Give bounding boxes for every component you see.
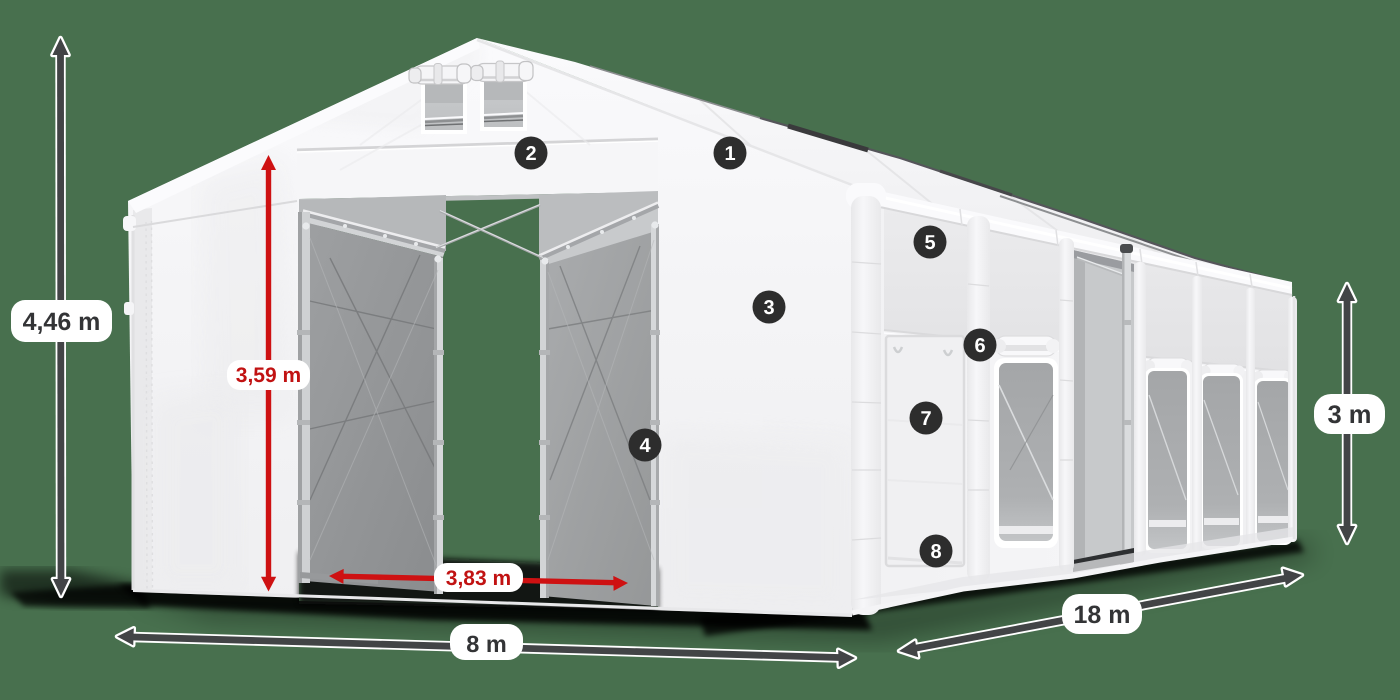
svg-text:5: 5 bbox=[924, 232, 935, 254]
svg-text:4,46 m: 4,46 m bbox=[23, 308, 101, 336]
svg-text:8: 8 bbox=[930, 541, 941, 563]
svg-text:8 m: 8 m bbox=[466, 631, 507, 657]
svg-text:4: 4 bbox=[639, 435, 651, 457]
svg-text:7: 7 bbox=[920, 408, 931, 430]
svg-text:3,59 m: 3,59 m bbox=[236, 364, 301, 387]
svg-text:3,83 m: 3,83 m bbox=[446, 567, 511, 590]
svg-text:3: 3 bbox=[763, 297, 774, 319]
svg-text:18 m: 18 m bbox=[1074, 601, 1131, 629]
svg-text:6: 6 bbox=[974, 335, 985, 357]
svg-text:3 m: 3 m bbox=[1328, 401, 1372, 429]
svg-text:1: 1 bbox=[724, 143, 735, 165]
svg-text:2: 2 bbox=[525, 143, 536, 165]
